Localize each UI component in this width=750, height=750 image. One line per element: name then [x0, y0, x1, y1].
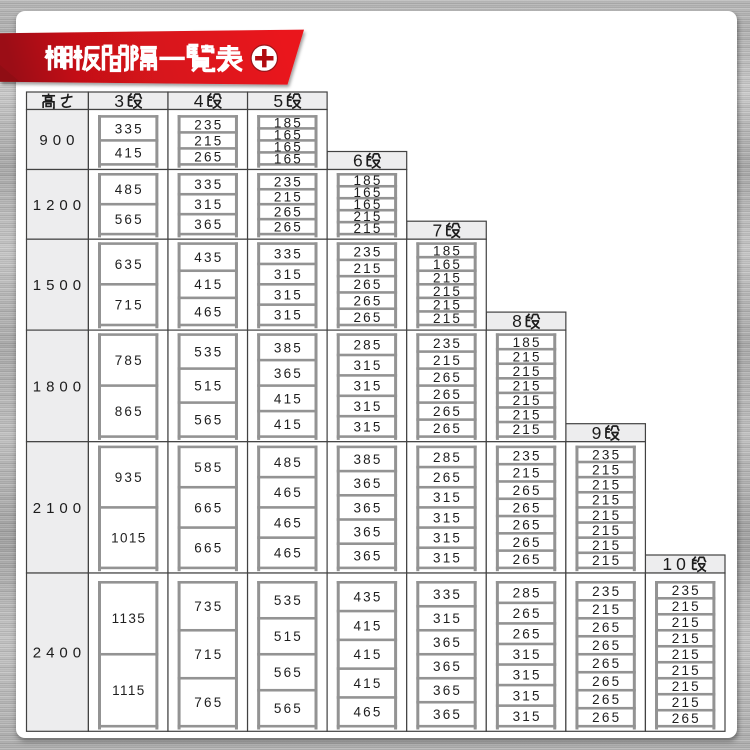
svg-text:7: 7 — [433, 220, 443, 240]
svg-text:8: 8 — [512, 311, 522, 331]
svg-text:315: 315 — [274, 287, 303, 302]
svg-text:215: 215 — [513, 393, 542, 408]
svg-text:215: 215 — [592, 478, 621, 493]
svg-text:235: 235 — [592, 447, 621, 462]
svg-text:365: 365 — [433, 635, 462, 650]
svg-text:215: 215 — [433, 311, 462, 326]
svg-text:265: 265 — [513, 518, 542, 533]
svg-text:565: 565 — [115, 212, 144, 227]
svg-text:1115: 1115 — [112, 683, 146, 698]
svg-text:365: 365 — [353, 549, 382, 564]
svg-text:215: 215 — [592, 602, 621, 617]
svg-text:265: 265 — [592, 674, 621, 689]
svg-text:335: 335 — [433, 587, 462, 602]
svg-text:1135: 1135 — [112, 611, 147, 626]
svg-text:265: 265 — [433, 404, 462, 419]
svg-text:165: 165 — [274, 151, 303, 166]
svg-text:215: 215 — [672, 679, 701, 694]
svg-text:585: 585 — [194, 460, 223, 475]
svg-text:415: 415 — [194, 277, 223, 292]
svg-text:215: 215 — [274, 190, 303, 205]
svg-text:215: 215 — [513, 379, 542, 394]
svg-text:10: 10 — [662, 554, 689, 574]
svg-text:215: 215 — [592, 508, 621, 523]
svg-text:315: 315 — [353, 358, 382, 373]
svg-text:415: 415 — [353, 647, 382, 662]
svg-text:385: 385 — [353, 452, 382, 467]
svg-text:235: 235 — [194, 117, 223, 132]
svg-text:215: 215 — [672, 599, 701, 614]
svg-text:485: 485 — [115, 182, 144, 197]
svg-text:535: 535 — [274, 593, 303, 608]
svg-text:465: 465 — [194, 304, 223, 319]
svg-text:265: 265 — [274, 220, 303, 235]
svg-text:365: 365 — [433, 707, 462, 722]
svg-text:315: 315 — [513, 647, 542, 662]
svg-text:235: 235 — [433, 336, 462, 351]
svg-text:465: 465 — [274, 515, 303, 530]
svg-text:215: 215 — [672, 695, 701, 710]
svg-text:515: 515 — [274, 629, 303, 644]
svg-text:235: 235 — [274, 175, 303, 190]
svg-text:465: 465 — [353, 705, 382, 720]
svg-text:365: 365 — [353, 525, 382, 540]
svg-text:1800: 1800 — [33, 378, 86, 395]
svg-text:1200: 1200 — [33, 197, 86, 214]
svg-text:265: 265 — [194, 149, 223, 164]
svg-text:235: 235 — [513, 448, 542, 463]
svg-text:265: 265 — [592, 620, 621, 635]
svg-text:315: 315 — [353, 419, 382, 434]
svg-text:315: 315 — [433, 551, 462, 566]
svg-text:265: 265 — [353, 293, 382, 308]
svg-text:365: 365 — [274, 366, 303, 381]
svg-text:235: 235 — [672, 583, 701, 598]
svg-text:315: 315 — [513, 709, 542, 724]
svg-text:215: 215 — [592, 523, 621, 538]
svg-text:335: 335 — [194, 177, 223, 192]
svg-text:185: 185 — [513, 335, 542, 350]
svg-text:315: 315 — [433, 611, 462, 626]
svg-text:215: 215 — [513, 422, 542, 437]
svg-text:215: 215 — [672, 615, 701, 630]
svg-text:365: 365 — [433, 683, 462, 698]
svg-text:265: 265 — [513, 552, 542, 567]
svg-text:265: 265 — [433, 470, 462, 485]
svg-text:265: 265 — [513, 500, 542, 515]
svg-text:215: 215 — [353, 261, 382, 276]
svg-text:265: 265 — [433, 387, 462, 402]
svg-text:265: 265 — [592, 638, 621, 653]
svg-text:215: 215 — [194, 133, 223, 148]
svg-text:365: 365 — [194, 217, 223, 232]
svg-text:465: 465 — [274, 485, 303, 500]
svg-text:665: 665 — [194, 541, 223, 556]
svg-text:215: 215 — [672, 663, 701, 678]
svg-text:265: 265 — [274, 205, 303, 220]
svg-text:315: 315 — [513, 668, 542, 683]
svg-text:900: 900 — [39, 132, 79, 149]
svg-text:215: 215 — [592, 538, 621, 553]
svg-text:265: 265 — [513, 627, 542, 642]
svg-text:9: 9 — [592, 423, 602, 443]
svg-text:315: 315 — [433, 490, 462, 505]
svg-text:1015: 1015 — [111, 531, 147, 546]
svg-text:435: 435 — [194, 250, 223, 265]
svg-text:5: 5 — [273, 91, 283, 111]
svg-text:315: 315 — [194, 197, 223, 212]
svg-text:215: 215 — [513, 349, 542, 364]
svg-text:735: 735 — [194, 599, 223, 614]
svg-text:265: 265 — [592, 710, 621, 725]
svg-text:265: 265 — [672, 711, 701, 726]
svg-text:265: 265 — [353, 277, 382, 292]
svg-text:1500: 1500 — [33, 277, 86, 294]
svg-text:265: 265 — [592, 692, 621, 707]
svg-text:635: 635 — [115, 257, 144, 272]
svg-text:715: 715 — [194, 647, 223, 662]
svg-text:665: 665 — [194, 500, 223, 515]
svg-text:365: 365 — [433, 659, 462, 674]
svg-text:235: 235 — [592, 584, 621, 599]
svg-text:515: 515 — [194, 379, 223, 394]
svg-text:565: 565 — [194, 413, 223, 428]
svg-text:435: 435 — [353, 590, 382, 605]
svg-text:265: 265 — [353, 310, 382, 325]
svg-text:865: 865 — [115, 404, 144, 419]
svg-text:215: 215 — [672, 647, 701, 662]
svg-text:235: 235 — [353, 245, 382, 260]
svg-text:265: 265 — [433, 370, 462, 385]
svg-text:315: 315 — [433, 531, 462, 546]
svg-text:215: 215 — [513, 364, 542, 379]
svg-text:285: 285 — [353, 338, 382, 353]
svg-text:385: 385 — [274, 340, 303, 355]
svg-text:265: 265 — [513, 483, 542, 498]
svg-text:3: 3 — [114, 91, 124, 111]
svg-text:415: 415 — [274, 391, 303, 406]
svg-text:315: 315 — [353, 379, 382, 394]
svg-text:335: 335 — [274, 247, 303, 262]
svg-text:365: 365 — [353, 500, 382, 515]
svg-text:265: 265 — [513, 535, 542, 550]
svg-text:565: 565 — [274, 665, 303, 680]
svg-text:415: 415 — [353, 676, 382, 691]
svg-text:335: 335 — [115, 121, 144, 136]
svg-text:365: 365 — [353, 476, 382, 491]
svg-text:485: 485 — [274, 455, 303, 470]
svg-text:315: 315 — [353, 399, 382, 414]
svg-text:465: 465 — [274, 546, 303, 561]
svg-text:415: 415 — [115, 145, 144, 160]
svg-text:785: 785 — [115, 353, 144, 368]
svg-text:215: 215 — [513, 466, 542, 481]
svg-text:215: 215 — [353, 221, 382, 236]
svg-text:6: 6 — [353, 151, 363, 171]
svg-text:415: 415 — [353, 618, 382, 633]
svg-text:765: 765 — [194, 695, 223, 710]
svg-text:215: 215 — [513, 408, 542, 423]
svg-text:415: 415 — [274, 417, 303, 432]
svg-text:2400: 2400 — [33, 645, 86, 662]
svg-text:215: 215 — [592, 493, 621, 508]
svg-text:315: 315 — [274, 308, 303, 323]
svg-text:565: 565 — [274, 701, 303, 716]
svg-text:2100: 2100 — [33, 500, 86, 517]
svg-text:315: 315 — [513, 688, 542, 703]
svg-text:265: 265 — [513, 606, 542, 621]
svg-text:315: 315 — [433, 510, 462, 525]
svg-text:215: 215 — [433, 353, 462, 368]
svg-text:265: 265 — [433, 421, 462, 436]
svg-text:315: 315 — [274, 267, 303, 282]
svg-text:265: 265 — [592, 656, 621, 671]
svg-text:215: 215 — [592, 462, 621, 477]
svg-text:285: 285 — [513, 585, 542, 600]
svg-text:535: 535 — [194, 345, 223, 360]
svg-text:215: 215 — [672, 631, 701, 646]
svg-text:285: 285 — [433, 450, 462, 465]
svg-text:715: 715 — [115, 298, 144, 313]
svg-text:935: 935 — [115, 470, 144, 485]
svg-text:215: 215 — [592, 553, 621, 568]
svg-text:4: 4 — [194, 91, 204, 111]
